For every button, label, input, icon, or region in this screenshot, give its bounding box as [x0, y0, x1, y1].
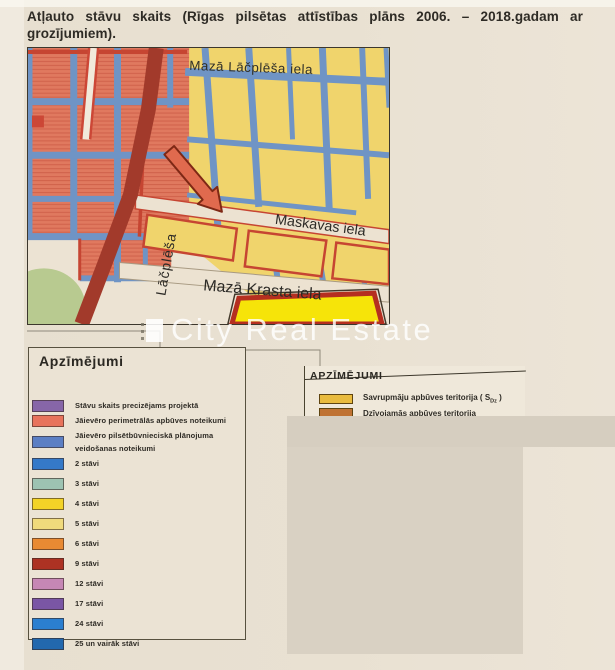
- legend-left-title: Apzīmējumi: [39, 353, 124, 369]
- legend-item: Jāievēro pilsētbūvnieciskā plānojuma vei…: [32, 429, 241, 455]
- page-top-edge: [0, 0, 615, 7]
- legend-item-label: Savrupmāju apbūves teritorija ( SDz ): [363, 393, 502, 405]
- legend-color-swatch: [32, 436, 64, 448]
- legend-item: 25 un vairāk stāvi: [32, 637, 241, 650]
- legend-color-swatch: [32, 458, 64, 470]
- legend-item: 3 stāvi: [32, 477, 241, 490]
- legend-item: Savrupmāju apbūves teritorija ( SDz ): [319, 393, 502, 405]
- legend-color-swatch: [32, 638, 64, 650]
- legend-item-label: 6 stāvi: [75, 537, 99, 550]
- legend-item: 2 stāvi: [32, 457, 241, 470]
- legend-color-swatch: [32, 618, 64, 630]
- legend-color-swatch: [32, 518, 64, 530]
- legend-item-label: 5 stāvi: [75, 517, 99, 530]
- legend-color-swatch: [32, 498, 64, 510]
- legend-left-items: Stāvu skaits precizējams projektāJāievēr…: [32, 399, 241, 657]
- legend-color-swatch: [32, 478, 64, 490]
- legend-item: 24 stāvi: [32, 617, 241, 630]
- legend-item-label: 9 stāvi: [75, 557, 99, 570]
- legend-color-swatch: [32, 598, 64, 610]
- legend-item-label: 24 stāvi: [75, 617, 103, 630]
- red-block-marker: [32, 116, 44, 128]
- legend-item-label: Jāievēro pilsētbūvnieciskā plānojuma vei…: [75, 429, 241, 455]
- legend-item-label: 12 stāvi: [75, 577, 103, 590]
- legend-color-swatch: [319, 394, 353, 404]
- legend-item: Jāievēro perimetrālās apbūves noteikumi: [32, 414, 241, 427]
- legend-item: 17 stāvi: [32, 597, 241, 610]
- legend-item: 6 stāvi: [32, 537, 241, 550]
- city-plan-map: Mazā Lāčplēša iela Maskavas iela Mazā Kr…: [27, 47, 390, 325]
- legend-color-swatch: [32, 578, 64, 590]
- legend-item-label: 2 stāvi: [75, 457, 99, 470]
- map-canvas: Mazā Lāčplēša iela Maskavas iela Mazā Kr…: [28, 48, 389, 324]
- legend-item: 4 stāvi: [32, 497, 241, 510]
- page-left-edge: [0, 0, 24, 670]
- legend-item-label: Stāvu skaits precizējams projektā: [75, 399, 198, 412]
- overlay-patch-rect: [287, 447, 523, 654]
- legend-color-swatch: [32, 415, 64, 427]
- page-title: Atļauto stāvu skaits (Rīgas pilsētas att…: [27, 8, 583, 42]
- legend-item: 9 stāvi: [32, 557, 241, 570]
- overlay-patch-band: [287, 416, 615, 447]
- legend-right-title: APZĪMĒJUMI: [310, 370, 383, 382]
- legend-item-label: 17 stāvi: [75, 597, 103, 610]
- legend-color-swatch: [32, 400, 64, 412]
- legend-item-label: 4 stāvi: [75, 497, 99, 510]
- legend-item: 5 stāvi: [32, 517, 241, 530]
- legend-color-swatch: [32, 538, 64, 550]
- legend-item-label: Jāievēro perimetrālās apbūves noteikumi: [75, 414, 226, 427]
- legend-item-label: 3 stāvi: [75, 477, 99, 490]
- legend-color-swatch: [32, 558, 64, 570]
- legend-item-label: 25 un vairāk stāvi: [75, 637, 139, 650]
- legend-panel-left: Apzīmējumi Stāvu skaits precizējams proj…: [28, 347, 246, 640]
- legend-item: 12 stāvi: [32, 577, 241, 590]
- legend-item: Stāvu skaits precizējams projektā: [32, 399, 241, 412]
